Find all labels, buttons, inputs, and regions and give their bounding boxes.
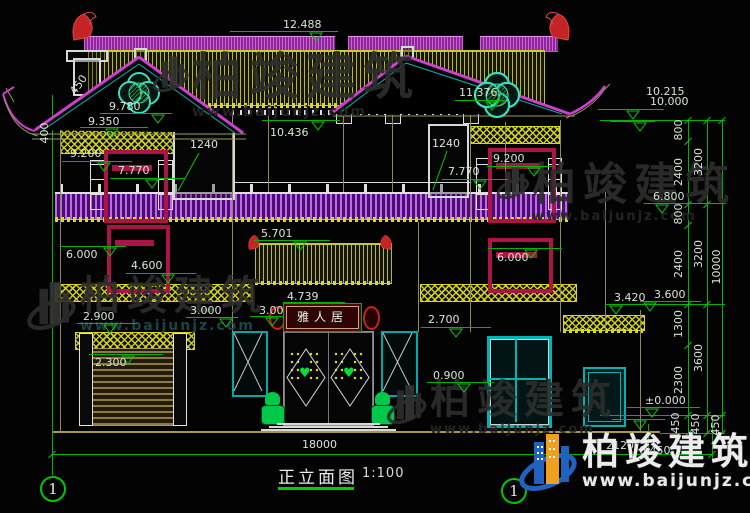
elevation-triangle bbox=[161, 274, 175, 284]
dim-label: 9.200 bbox=[70, 148, 102, 160]
dim-label: 9.780 bbox=[109, 101, 141, 113]
brand-name: 柏竣建筑 bbox=[582, 433, 750, 470]
elevation-triangle bbox=[655, 204, 669, 214]
elevation-triangle bbox=[105, 128, 119, 138]
elevation-triangle bbox=[527, 167, 541, 177]
dim-label: 7.770 bbox=[118, 165, 150, 177]
elevation-level-line bbox=[254, 240, 330, 241]
drawing-title: 正立面图 bbox=[278, 468, 358, 488]
rotated-dim-label: 2400 bbox=[673, 150, 685, 194]
dim-label: 1240 bbox=[190, 139, 218, 151]
elevation-triangle bbox=[645, 408, 659, 418]
watermark-brand-name: 柏竣建筑 bbox=[532, 163, 736, 207]
elevation-triangle bbox=[309, 32, 323, 42]
entrance-plaque: 雅人居 bbox=[283, 303, 362, 332]
dim-label: 9.350 bbox=[88, 116, 120, 128]
rotated-dim-label: 800 bbox=[673, 108, 685, 152]
elevation-triangle bbox=[151, 114, 165, 124]
elevation-triangle bbox=[265, 317, 279, 327]
watermark-brand-url: www.baijunjz.com bbox=[192, 104, 420, 120]
watermark: 柏竣建筑 www.baijunjz.com bbox=[152, 52, 420, 120]
elevation-triangle bbox=[311, 121, 325, 131]
elevation-triangle bbox=[293, 241, 307, 251]
dim-label: 3.600 bbox=[654, 289, 686, 301]
rotated-dim-label: 800 bbox=[673, 192, 685, 236]
brand-logo-icon bbox=[518, 428, 582, 496]
watermark-logo-icon bbox=[26, 276, 80, 335]
dim-label: 6.000 bbox=[66, 249, 98, 261]
dim-label: 3.000 bbox=[190, 305, 222, 317]
rotated-dim-label: 3200 bbox=[693, 140, 705, 184]
dim-label: 9.200 bbox=[493, 153, 525, 165]
elevation-triangle bbox=[626, 110, 640, 120]
elevation-triangle bbox=[633, 122, 647, 132]
rotated-dim-label: 2300 bbox=[673, 358, 685, 402]
dim-label: 2.300 bbox=[95, 357, 127, 369]
axis-bubble-left: 1 bbox=[40, 476, 66, 502]
elevation-triangle bbox=[473, 180, 487, 190]
watermark-brand-name: 柏竣建筑 bbox=[192, 52, 420, 102]
dim-label: 4.600 bbox=[131, 260, 163, 272]
drawing-scale: 1:100 bbox=[362, 466, 404, 481]
rotated-dim-label: 2400 bbox=[673, 242, 685, 286]
brand-url: www.baijunjz.com bbox=[582, 471, 750, 491]
ridge-ornament-left bbox=[73, 12, 96, 40]
dim-label: 2.700 bbox=[428, 314, 460, 326]
elevation-level-line bbox=[487, 166, 552, 167]
title-underline bbox=[278, 487, 354, 490]
rotated-dim-label: 1300 bbox=[673, 302, 685, 346]
dim-label: 10.436 bbox=[270, 127, 309, 139]
dim-label: 5.701 bbox=[261, 228, 293, 240]
elevation-triangle bbox=[457, 383, 471, 393]
dim-label: 18000 bbox=[302, 439, 337, 451]
watermark-logo-icon bbox=[152, 52, 192, 96]
rotated-dim-label: 10000 bbox=[711, 245, 723, 289]
left-eave-curl bbox=[3, 87, 38, 136]
brand-logo-block: 柏竣建筑 www.baijunjz.com bbox=[518, 428, 750, 496]
rotated-dim-label: 3200 bbox=[693, 232, 705, 276]
dim-label: 4.739 bbox=[287, 291, 319, 303]
dim-label: 7.770 bbox=[448, 166, 480, 178]
ridge-ornament-right bbox=[546, 12, 569, 40]
watermark-brand-url: www.baijunjz.com bbox=[532, 209, 736, 224]
elevation-triangle bbox=[219, 318, 233, 328]
title-block: 正立面图 1:100 bbox=[278, 463, 358, 488]
elevation-triangle bbox=[449, 328, 463, 338]
elevation-triangle bbox=[609, 305, 623, 315]
canopy-ornament-left bbox=[249, 235, 260, 249]
elevation-drawing-canvas: ♥♥ bbox=[0, 0, 750, 513]
rotated-dim-label: 400 bbox=[39, 111, 51, 155]
elevation-level-line bbox=[262, 120, 340, 121]
elevation-triangle bbox=[97, 162, 111, 172]
dim-label: 11.376 bbox=[459, 87, 498, 99]
right-eave-curl bbox=[566, 84, 610, 118]
elevation-triangle bbox=[485, 101, 499, 111]
door-diamond-patterns bbox=[287, 349, 369, 406]
window-leader-lines bbox=[178, 151, 447, 191]
dim-label: 10.000 bbox=[650, 96, 689, 108]
dim-label: 2.900 bbox=[83, 311, 115, 323]
dim-label: 6.000 bbox=[497, 252, 529, 264]
dim-label: 0.900 bbox=[433, 370, 465, 382]
rotated-dim-label: 3600 bbox=[693, 336, 705, 380]
axis-number-left: 1 bbox=[48, 480, 58, 498]
canopy-ornament-right bbox=[381, 235, 392, 249]
elevation-triangle bbox=[103, 247, 117, 257]
dim-label: 3.420 bbox=[614, 292, 646, 304]
elevation-triangle bbox=[145, 179, 159, 189]
elevation-triangle bbox=[643, 302, 657, 312]
dim-label: 1240 bbox=[432, 138, 460, 150]
dim-label: 12.488 bbox=[283, 19, 322, 31]
watermark-logo-icon bbox=[386, 380, 430, 428]
elevation-triangle bbox=[103, 324, 117, 334]
